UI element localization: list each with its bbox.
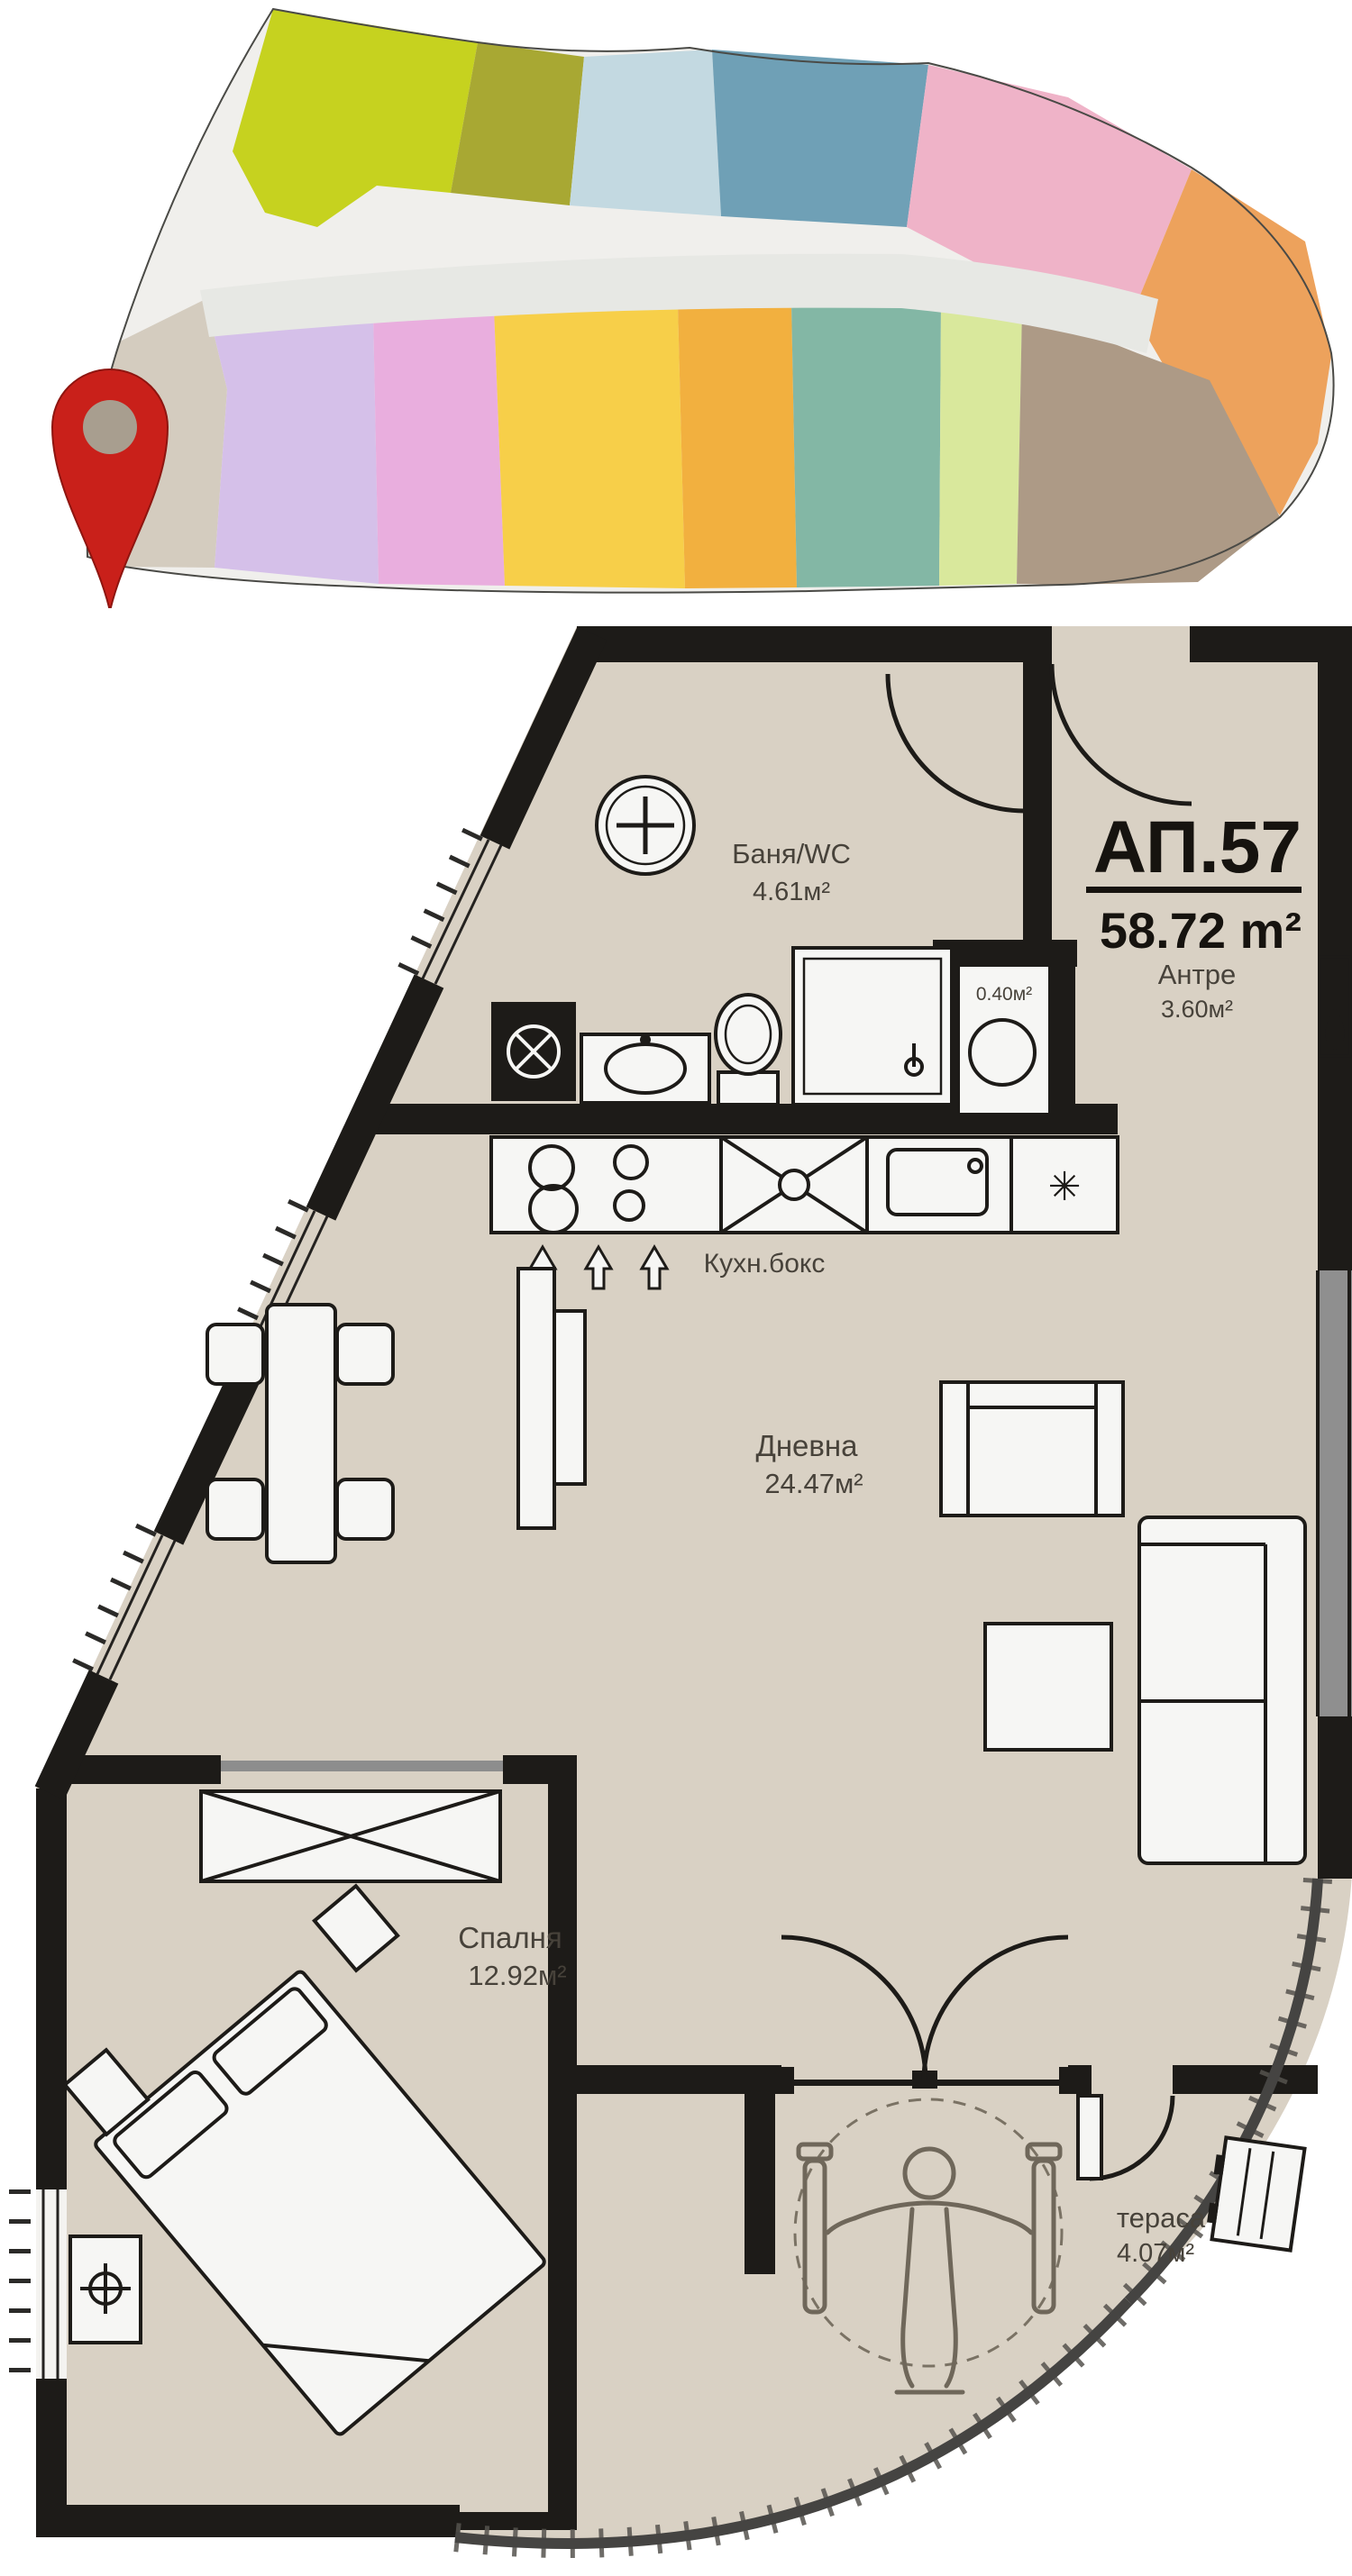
entry-label: Антре [1158,959,1236,990]
washing-machine-icon [491,1002,576,1101]
terrace-door-leaf [1078,2096,1101,2179]
entry-area: 3.60м² [1161,996,1233,1023]
overview-apartment-steel-blue[interactable] [712,50,928,227]
overview-apartment-lavender[interactable] [206,299,379,584]
wardrobe [201,1791,500,1881]
bedroom-area: 12.92м² [468,1960,566,1991]
overview-apartment-amber[interactable] [678,302,797,588]
apartment-total-area: 58.72 m² [1100,902,1302,959]
overview-apartment-lime[interactable] [939,305,1022,586]
location-pin-icon[interactable] [52,369,168,607]
shower-tray [793,948,952,1105]
kitchen-label: Кухн.бокс [704,1249,826,1279]
plan-titles: АП.57 58.72 m² [1086,806,1302,959]
title-underline [1086,887,1302,893]
bedroom-label: Спалня [458,1921,562,1954]
overview-apartment-orchid[interactable] [373,308,505,586]
bathroom-area: 4.61м² [753,878,830,906]
survey-marker-icon [70,2236,141,2343]
sliding-door-track [221,1761,503,1771]
overview-apartment-teal-green[interactable] [791,302,941,587]
terrace-area: 4.07м² [1117,2239,1194,2268]
toilet-icon [716,995,781,1105]
floorplan-page: ✳ [0,0,1352,2576]
sofa [1139,1517,1305,1863]
shaft-area: 0.40м² [976,984,1032,1005]
living-label: Дневна [755,1429,858,1462]
left-wall-window [20,2189,67,2379]
bathroom-label: Баня/WC [732,838,851,869]
bathroom-sink [581,1034,709,1103]
apartment-id: АП.57 [1093,806,1302,888]
overview-floor-map [52,9,1334,607]
coffee-table [985,1624,1111,1750]
living-area: 24.47м² [764,1468,863,1499]
pin-hole [83,400,137,454]
kitchen-sink [888,1150,987,1215]
fridge-icon: ✳ [1048,1165,1082,1209]
armchair [941,1382,1123,1516]
overview-apartment-yellow[interactable] [494,305,685,588]
overview-apartment-pale-blue[interactable] [570,50,721,216]
terrace-label: тераса [1117,2202,1206,2234]
apartment-plan: ✳ [20,626,1352,2544]
vent-fan-icon [597,777,694,874]
right-wall-glass [1318,1270,1352,1716]
